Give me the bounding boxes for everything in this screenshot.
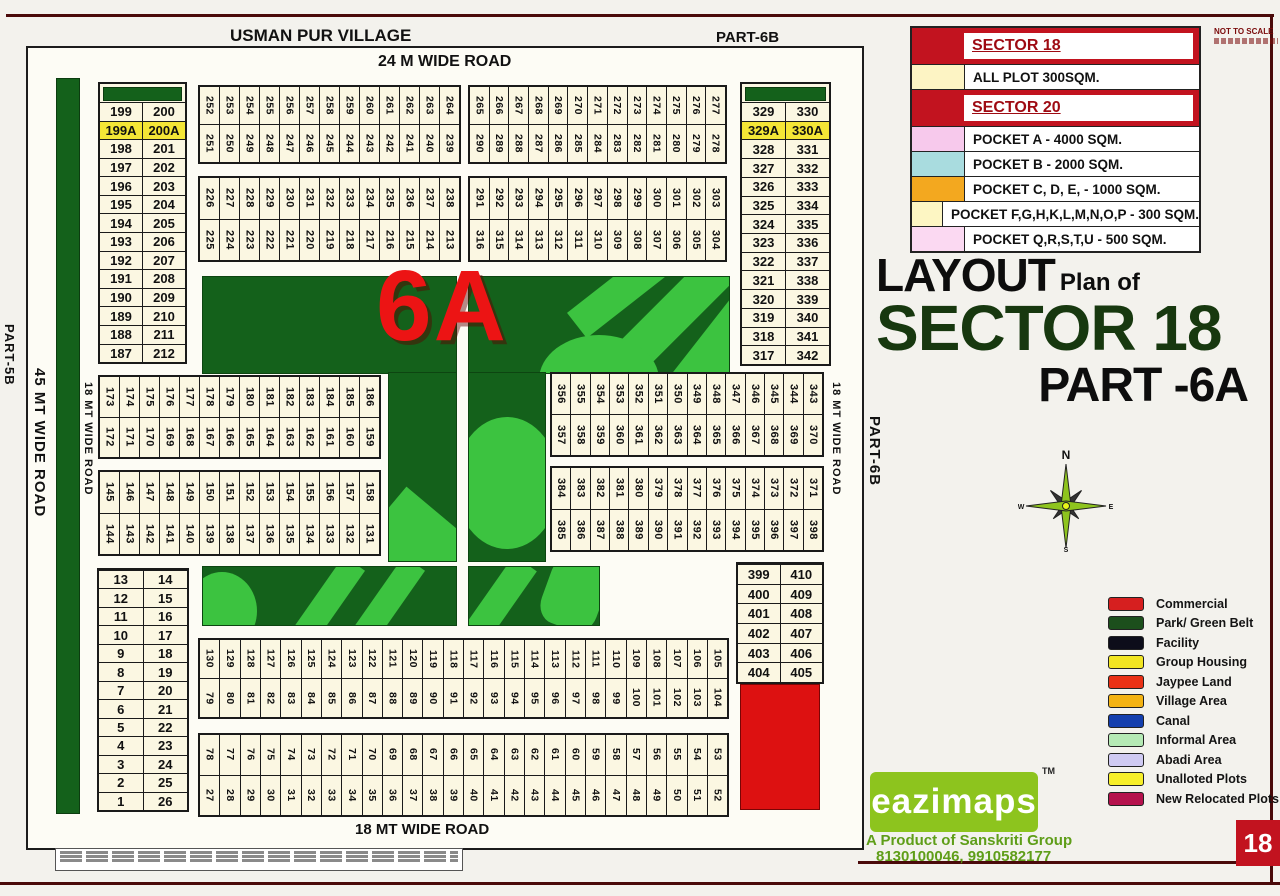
plot-cell: 23 (144, 737, 188, 754)
plot-cell: 291 (470, 178, 489, 220)
plot-column: 6342 (505, 735, 525, 815)
plot-cell: 227 (220, 178, 239, 220)
legend-swatch (912, 227, 965, 251)
plot-cell: 305 (687, 220, 706, 261)
plot-column: 254249 (240, 87, 260, 162)
plot-cell: 96 (545, 679, 564, 717)
plot-column: 344369 (784, 374, 803, 455)
plot-cell: 288 (509, 125, 528, 162)
layout-plan-sheet: USMAN PUR VILLAGE PART-6B PART-5B PART-6… (0, 0, 1280, 896)
plot-cell: 406 (781, 644, 823, 663)
legend-item-label: Abadi Area (1156, 753, 1222, 767)
plot-cell: 11 (99, 608, 144, 625)
plot-cell: 189 (100, 307, 143, 325)
plot-column: 105104 (708, 640, 727, 717)
plot-cell: 62 (525, 735, 544, 776)
plot-cell: 395 (746, 510, 764, 551)
plot-cell: 167 (200, 418, 219, 458)
plot-row: 319340 (742, 308, 829, 327)
plot-cell: 74 (281, 735, 300, 776)
plot-cell: 13 (99, 571, 144, 588)
legend-swatch (912, 202, 943, 226)
plot-cell: 155 (300, 472, 319, 514)
plot-cell: 224 (220, 220, 239, 261)
plot-row: 327332 (742, 158, 829, 177)
legend-swatch (912, 177, 965, 201)
plot-cell: 51 (688, 776, 707, 816)
plot-row: 199A200A (100, 121, 185, 140)
plot-column: 300307 (647, 178, 667, 260)
plot-cell: 261 (380, 87, 399, 125)
plot-cell: 388 (610, 510, 628, 551)
plot-cell: 289 (490, 125, 509, 162)
plot-column: 185160 (340, 377, 360, 457)
plot-cell: 238 (440, 178, 459, 220)
plot-cell: 159 (360, 418, 379, 458)
plot-column: 230221 (280, 178, 300, 260)
plot-cell: 328 (742, 140, 786, 158)
legend-label: POCKET B - 2000 SQM. (965, 152, 1199, 176)
plot-cell: 14 (144, 571, 188, 588)
legend-color-swatch (1108, 714, 1144, 728)
plot-cell: 156 (320, 472, 339, 514)
legend-item: Village Area (1108, 692, 1279, 712)
plot-column: 236215 (400, 178, 420, 260)
plot-column: 157132 (340, 472, 360, 554)
legend-item: Abadi Area (1108, 750, 1279, 770)
plot-column: 294313 (529, 178, 549, 260)
plot-cell: 153 (260, 472, 279, 514)
plot-cell: 170 (140, 418, 159, 458)
sector-legend-table: SECTOR 18ALL PLOT 300SQM.SECTOR 20POCKET… (910, 26, 1201, 253)
plot-cell: 48 (627, 776, 646, 816)
plot-column: 155134 (300, 472, 320, 554)
plot-cell: 258 (320, 87, 339, 125)
plot-cell: 79 (200, 679, 219, 717)
plot-column: 12188 (383, 640, 403, 717)
legend-item-label: Group Housing (1156, 655, 1247, 669)
plot-cell: 376 (707, 468, 725, 510)
plot-column: 383386 (571, 468, 590, 550)
legend-swatch (912, 65, 965, 89)
legend-item: Jaypee Land (1108, 672, 1279, 692)
trademark-mark: TM (1042, 766, 1055, 776)
plot-cell: 282 (628, 125, 647, 162)
plot-cell: 346 (746, 374, 764, 415)
plot-cell: 256 (280, 87, 299, 125)
plot-cell: 191 (100, 270, 143, 288)
plot-cell: 252 (200, 87, 219, 125)
plot-cell: 351 (649, 374, 667, 415)
commercial-plot (740, 684, 820, 810)
plot-cell: 206 (143, 233, 185, 251)
legend-item-label: Canal (1156, 714, 1190, 728)
plot-cell: 296 (568, 178, 587, 220)
plot-cell: 311 (568, 220, 587, 261)
plot-column: 6045 (566, 735, 586, 815)
plot-cell: 297 (588, 178, 607, 220)
plot-cell: 121 (383, 640, 402, 679)
plot-column: 371398 (804, 468, 822, 550)
plot-column: 174171 (120, 377, 140, 457)
plot-column: 228223 (240, 178, 260, 260)
plot-column: 11792 (464, 640, 484, 717)
plot-cell: 210 (143, 307, 185, 325)
plot-block-399-410: 399410400409401408402407403406404405 (736, 562, 824, 684)
plot-cell: 267 (509, 87, 528, 125)
plot-cell: 8 (99, 663, 144, 680)
plot-cell: 244 (340, 125, 359, 162)
plot-column: 235216 (380, 178, 400, 260)
plot-cell: 22 (144, 719, 188, 736)
plot-cell: 129 (220, 640, 239, 679)
plot-cell: 386 (571, 510, 589, 551)
plot-cell: 32 (302, 776, 321, 816)
plot-cell: 117 (464, 640, 483, 679)
plot-cell: 195 (100, 196, 143, 214)
plot-cell: 362 (649, 415, 667, 455)
plot-cell: 231 (300, 178, 319, 220)
plot-cell: 114 (525, 640, 544, 679)
plot-column: 238213 (440, 178, 459, 260)
legend-item: Group Housing (1108, 653, 1279, 673)
plot-cell: 147 (140, 472, 159, 514)
plot-row: 400409 (738, 584, 822, 604)
plot-cell: 390 (649, 510, 667, 551)
plot-cell: 242 (380, 125, 399, 162)
legend-item-label: Informal Area (1156, 733, 1236, 747)
plot-column: 7530 (261, 735, 281, 815)
plot-cell: 188 (100, 326, 143, 344)
plot-block-1-26: 1314121511161017918819720621522423324225… (97, 568, 189, 812)
plot-column: 178167 (200, 377, 220, 457)
plot-cell: 314 (509, 220, 528, 261)
plot-cell: 47 (606, 776, 625, 816)
plot-column: 260243 (360, 87, 380, 162)
plot-row: 318341 (742, 327, 829, 346)
plot-column: 154135 (280, 472, 300, 554)
plot-cell: 55 (667, 735, 686, 776)
plot-cell: 143 (120, 514, 139, 555)
plot-column: 375394 (726, 468, 745, 550)
plot-cell: 69 (383, 735, 402, 776)
plot-cell: 400 (738, 585, 781, 604)
plot-column: 6144 (545, 735, 565, 815)
plot-cell: 54 (688, 735, 707, 776)
plot-cell: 76 (241, 735, 260, 776)
plot-cell: 304 (706, 220, 725, 261)
legend-item: Informal Area (1108, 731, 1279, 751)
plot-column: 380389 (629, 468, 648, 550)
plot-cell: 243 (360, 125, 379, 162)
plot-cell: 354 (591, 374, 609, 415)
plot-cell: 77 (220, 735, 239, 776)
plot-cell: 262 (400, 87, 419, 125)
plot-cell: 35 (363, 776, 382, 816)
plot-column: 7035 (363, 735, 383, 815)
plot-column: 12782 (261, 640, 281, 717)
plot-cell: 3 (99, 756, 144, 773)
plot-cell: 330A (786, 122, 829, 140)
plot-column: 151138 (220, 472, 240, 554)
plot-cell: 25 (144, 774, 188, 791)
plot-cell: 179 (220, 377, 239, 418)
plot-column: 351362 (649, 374, 668, 455)
plot-cell: 184 (320, 377, 339, 418)
plot-cell: 43 (525, 776, 544, 816)
plot-column: 6243 (525, 735, 545, 815)
legend-item: Unalloted Plots (1108, 770, 1279, 790)
plot-column: 352361 (629, 374, 648, 455)
plot-cell: 171 (120, 418, 139, 458)
legend-item-label: Park/ Green Belt (1156, 616, 1253, 630)
plot-cell: 104 (708, 679, 727, 717)
plot-row: 399410 (738, 564, 822, 584)
plot-column: 5352 (708, 735, 727, 815)
plot-row: 322337 (742, 252, 829, 271)
plot-cell: 385 (552, 510, 570, 551)
plot-cell: 200 (143, 103, 185, 121)
plot-cell: 182 (280, 377, 299, 418)
plot-cell: 382 (591, 468, 609, 510)
legend-table-row: ALL PLOT 300SQM. (912, 65, 1199, 90)
plot-column: 6639 (444, 735, 464, 815)
plot-column: 12980 (220, 640, 240, 717)
plot-cell: 98 (586, 679, 605, 717)
plot-cell: 263 (420, 87, 439, 125)
plot-cell: 199A (100, 122, 143, 140)
plot-cell: 152 (240, 472, 259, 514)
plot-cell: 21 (144, 700, 188, 717)
plot-column: 303304 (706, 178, 725, 260)
plot-column: 349364 (688, 374, 707, 455)
plot-column: 148141 (160, 472, 180, 554)
legend-table-row: POCKET C, D, E, - 1000 SQM. (912, 177, 1199, 202)
plot-cell: 154 (280, 472, 299, 514)
plot-cell: 292 (490, 178, 509, 220)
plot-cell: 193 (100, 233, 143, 251)
plot-cell: 387 (591, 510, 609, 551)
plot-cell: 350 (668, 374, 686, 415)
plot-cell: 82 (261, 679, 280, 717)
sheet-border-bottom (0, 882, 1280, 885)
plot-cell: 107 (667, 640, 686, 679)
plot-cell: 149 (180, 472, 199, 514)
plot-cell: 348 (707, 374, 725, 415)
plot-row: 1017 (99, 625, 187, 643)
plot-cell: 392 (688, 510, 706, 551)
plot-cell: 245 (320, 125, 339, 162)
plot-cell: 339 (786, 290, 829, 308)
plot-column: 356357 (552, 374, 571, 455)
plot-row: 401408 (738, 603, 822, 623)
legend-color-swatch (1108, 792, 1144, 806)
plot-cell: 212 (143, 345, 185, 363)
plot-cell: 383 (571, 468, 589, 510)
plot-cell: 49 (647, 776, 666, 816)
plot-cell: 325 (742, 197, 786, 215)
legend-item-label: Unalloted Plots (1156, 772, 1247, 786)
plot-cell: 150 (200, 472, 219, 514)
plot-cell: 103 (688, 679, 707, 717)
plot-column: 373396 (765, 468, 784, 550)
plot-column: 11990 (423, 640, 443, 717)
legend-item-label: Commercial (1156, 597, 1228, 611)
plot-cell: 130 (200, 640, 219, 679)
legend-item-label: Facility (1156, 636, 1199, 650)
plot-cell: 194 (100, 214, 143, 232)
plot-cell: 357 (552, 415, 570, 455)
plot-cell: 161 (320, 418, 339, 458)
plot-cell: 177 (180, 377, 199, 418)
plot-cell: 310 (588, 220, 607, 261)
legend-item-label: Jaypee Land (1156, 675, 1232, 689)
plot-cell: 360 (610, 415, 628, 455)
plot-cell: 404 (738, 663, 781, 682)
plot-cell: 225 (200, 220, 219, 261)
legend-color-swatch (1108, 753, 1144, 767)
plot-cell: 219 (320, 220, 339, 261)
plot-column: 263240 (420, 87, 440, 162)
plot-cell: 338 (786, 271, 829, 289)
plot-cell: 398 (804, 510, 822, 551)
plot-cell: 108 (647, 640, 666, 679)
plot-cell: 101 (647, 679, 666, 717)
plot-cell: 84 (302, 679, 321, 717)
plot-cell: 375 (726, 468, 744, 510)
plot-row: 1215 (99, 588, 187, 606)
plot-cell: 402 (738, 624, 781, 643)
plot-row: 328331 (742, 139, 829, 158)
plot-column: 382387 (591, 468, 610, 550)
plot-cell: 137 (240, 514, 259, 555)
plot-column: 13079 (200, 640, 220, 717)
plot-cell: 115 (505, 640, 524, 679)
plot-cell: 91 (444, 679, 463, 717)
plot-row: 325334 (742, 196, 829, 215)
plot-cell: 377 (688, 468, 706, 510)
plot-row: 192207 (100, 251, 185, 270)
plot-cell: 183 (300, 377, 319, 418)
plot-column: 5451 (688, 735, 708, 815)
plot-cell: 232 (320, 178, 339, 220)
plot-cell: 380 (629, 468, 647, 510)
plot-cell: 93 (484, 679, 503, 717)
plot-column: 377392 (688, 468, 707, 550)
plot-cell: 105 (708, 640, 727, 679)
plot-row: 404405 (738, 662, 822, 682)
plot-column: 302305 (687, 178, 707, 260)
plot-column: 276279 (687, 87, 707, 162)
plot-cell: 80 (220, 679, 239, 717)
plot-column: 175170 (140, 377, 160, 457)
plot-cell: 202 (143, 159, 185, 177)
plot-column: 374395 (746, 468, 765, 550)
plot-strip-252-264: 2522512532502542492552482562472572462582… (198, 85, 461, 164)
plot-row: 317342 (742, 345, 829, 364)
sheet-border-top (6, 14, 1274, 17)
plot-cell: 71 (342, 735, 361, 776)
plot-cell: 176 (160, 377, 179, 418)
plot-cell: 285 (568, 125, 587, 162)
plot-cell: 128 (241, 640, 260, 679)
plot-cell: 24 (144, 756, 188, 773)
plot-cell: 248 (260, 125, 279, 162)
plot-row: 193206 (100, 232, 185, 251)
plot-cell: 66 (444, 735, 463, 776)
plot-row: 323336 (742, 233, 829, 252)
plot-cell: 247 (280, 125, 299, 162)
plot-column: 106103 (688, 640, 708, 717)
plot-column: 226225 (200, 178, 220, 260)
plot-cell: 250 (220, 125, 239, 162)
plot-cell: 410 (781, 565, 823, 584)
plot-cell: 131 (360, 514, 379, 555)
plot-cell: 298 (608, 178, 627, 220)
plot-cell: 276 (687, 87, 706, 125)
plot-cell: 372 (784, 468, 802, 510)
plot-cell: 157 (340, 472, 359, 514)
legend-color-swatch (1108, 675, 1144, 689)
plot-cell: 260 (360, 87, 379, 125)
plot-cell: 142 (140, 514, 159, 555)
plot-column: 264239 (440, 87, 459, 162)
plot-cell: 393 (707, 510, 725, 551)
plot-column: 147142 (140, 472, 160, 554)
plot-cell: 134 (300, 514, 319, 555)
plot-cell: 5 (99, 719, 144, 736)
plot-column: 345368 (765, 374, 784, 455)
plot-column: 293314 (509, 178, 529, 260)
plot-row: 324 (99, 755, 187, 773)
plot-column: 7233 (322, 735, 342, 815)
plot-cell: 241 (400, 125, 419, 162)
plot-column: 231220 (300, 178, 320, 260)
plot-column: 354359 (591, 374, 610, 455)
plot-cell: 50 (667, 776, 686, 816)
plot-cell: 342 (786, 346, 829, 364)
plot-cell: 207 (143, 252, 185, 270)
plot-cell: 7 (99, 682, 144, 699)
sector-6a-park-label: 6A (376, 256, 508, 356)
plot-column: 262241 (400, 87, 420, 162)
plot-cell: 19 (144, 663, 188, 680)
plot-row: 1314 (99, 570, 187, 588)
plot-cell: 228 (240, 178, 259, 220)
plot-cell: 347 (726, 374, 744, 415)
plot-row: 191208 (100, 269, 185, 288)
plot-cell: 17 (144, 626, 188, 643)
plot-column: 182163 (280, 377, 300, 457)
plot-cell: 86 (342, 679, 361, 717)
village-label: USMAN PUR VILLAGE (230, 26, 411, 46)
plot-cell: 111 (586, 640, 605, 679)
plot-cell: 38 (423, 776, 442, 816)
plot-cell: 389 (629, 510, 647, 551)
plot-cell: 399 (738, 565, 781, 584)
plot-column: 6936 (383, 735, 403, 815)
plot-cell: 401 (738, 604, 781, 623)
plot-cell: 10 (99, 626, 144, 643)
plot-cell: 251 (200, 125, 219, 162)
plot-column: 268287 (529, 87, 549, 162)
plot-column: 259244 (340, 87, 360, 162)
legend-color-swatch (1108, 636, 1144, 650)
plot-cell: 220 (300, 220, 319, 261)
plot-column: 355358 (571, 374, 590, 455)
plot-column: 152137 (240, 472, 260, 554)
plot-cell: 56 (647, 735, 666, 776)
